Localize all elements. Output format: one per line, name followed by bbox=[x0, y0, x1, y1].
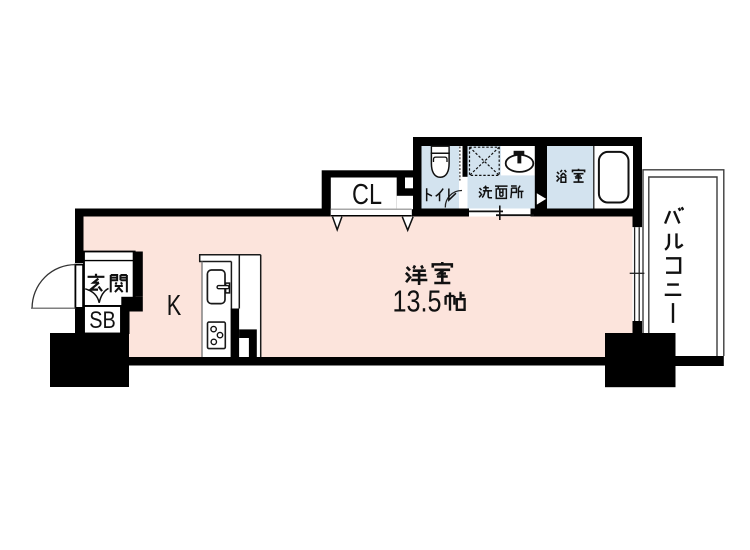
svg-text:SB: SB bbox=[89, 307, 116, 334]
svg-text:K: K bbox=[167, 290, 182, 322]
svg-text:13.5: 13.5 bbox=[393, 284, 442, 319]
svg-text:CL: CL bbox=[352, 179, 382, 211]
